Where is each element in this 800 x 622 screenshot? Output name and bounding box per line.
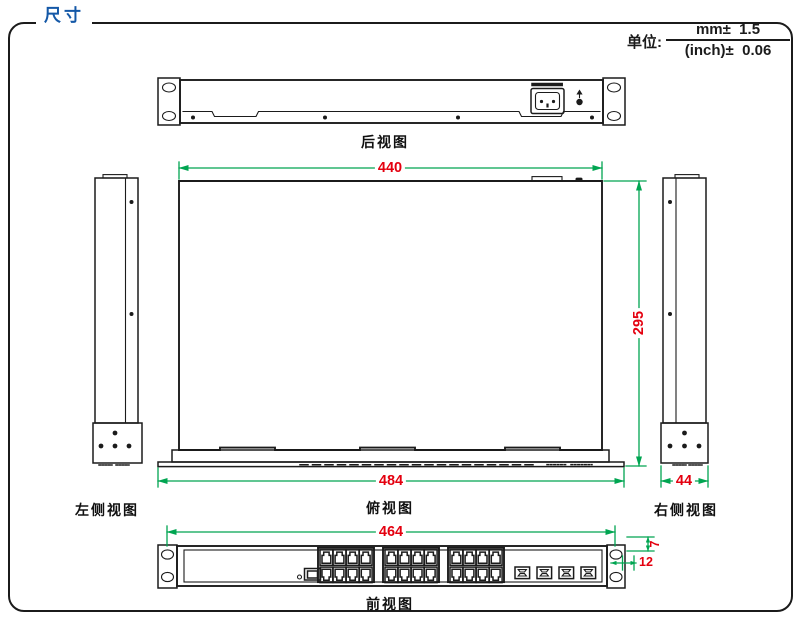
ear-hole: [163, 83, 176, 92]
front-panel-edge: [172, 450, 609, 462]
top-view-drawing: [158, 177, 624, 467]
screw-dot: [456, 116, 460, 120]
ear-hole: [608, 112, 621, 121]
sfp-port-1: [515, 567, 530, 579]
screw-hole: [668, 444, 673, 449]
ground-terminal-icon: [576, 90, 582, 106]
left-side-view-drawing: [93, 175, 142, 465]
mounting-ear-left: [158, 78, 180, 125]
side-body: [95, 178, 138, 423]
dimension-drawing-page: 尺寸 单位: mm± 1.5 (inch)± 0.06: [0, 0, 800, 622]
mounting-ear-right: [603, 78, 625, 125]
ground-screw-top: [576, 178, 583, 181]
rj45-port-block-2: [383, 548, 439, 583]
screw-hole: [668, 312, 672, 316]
rack-ear-block: [661, 423, 708, 463]
rear-view-drawing: [158, 78, 625, 125]
dim-value-484: 484: [376, 473, 406, 489]
dim-value-295: 295: [631, 308, 647, 338]
screw-dot: [191, 116, 195, 120]
ear-hole: [610, 572, 622, 581]
screw-hole: [113, 444, 118, 449]
side-body: [663, 178, 706, 423]
ear-hole: [162, 572, 174, 581]
screw-hole: [697, 444, 702, 449]
screw-dot: [323, 116, 327, 120]
dimension-annotations: [158, 162, 708, 570]
screw-hole: [113, 431, 118, 436]
top-view-label: 俯视图: [366, 498, 414, 518]
dim-value-440: 440: [375, 160, 405, 176]
left-side-view-label: 左侧视图: [75, 500, 139, 520]
right-side-view-label: 右侧视图: [654, 500, 718, 520]
rj45-port-block-3: [448, 548, 504, 583]
screw-hole: [127, 444, 132, 449]
front-view-label: 前视图: [366, 594, 414, 614]
sfp-port-2: [537, 567, 552, 579]
screw-hole: [99, 444, 104, 449]
rear-view-label: 后视图: [361, 132, 409, 152]
screw-hole: [668, 200, 672, 204]
ear-hole: [608, 83, 621, 92]
power-inlet-icon: [531, 85, 564, 114]
top-chassis-outline: [179, 181, 602, 450]
front-view-drawing: [158, 545, 625, 588]
ear-hole: [162, 550, 174, 559]
dim-value-464: 464: [376, 524, 406, 540]
sfp-port-4: [581, 567, 596, 579]
dim-value-44: 44: [673, 473, 695, 489]
ear-hole: [610, 550, 622, 559]
rj45-port-block-1: [318, 548, 374, 583]
screw-hole: [682, 444, 687, 449]
dim-value-7: 7: [648, 541, 662, 548]
right-side-view-drawing: [661, 175, 708, 465]
screw-hole: [682, 431, 687, 436]
screw-hole: [130, 312, 134, 316]
screw-dot: [590, 116, 594, 120]
dim-value-12: 12: [639, 555, 653, 569]
rack-ear-block: [93, 423, 142, 463]
screw-hole: [130, 200, 134, 204]
reset-button: [298, 575, 302, 579]
ear-hole: [163, 112, 176, 121]
sfp-port-3: [559, 567, 574, 579]
vent-grid: [200, 556, 293, 579]
